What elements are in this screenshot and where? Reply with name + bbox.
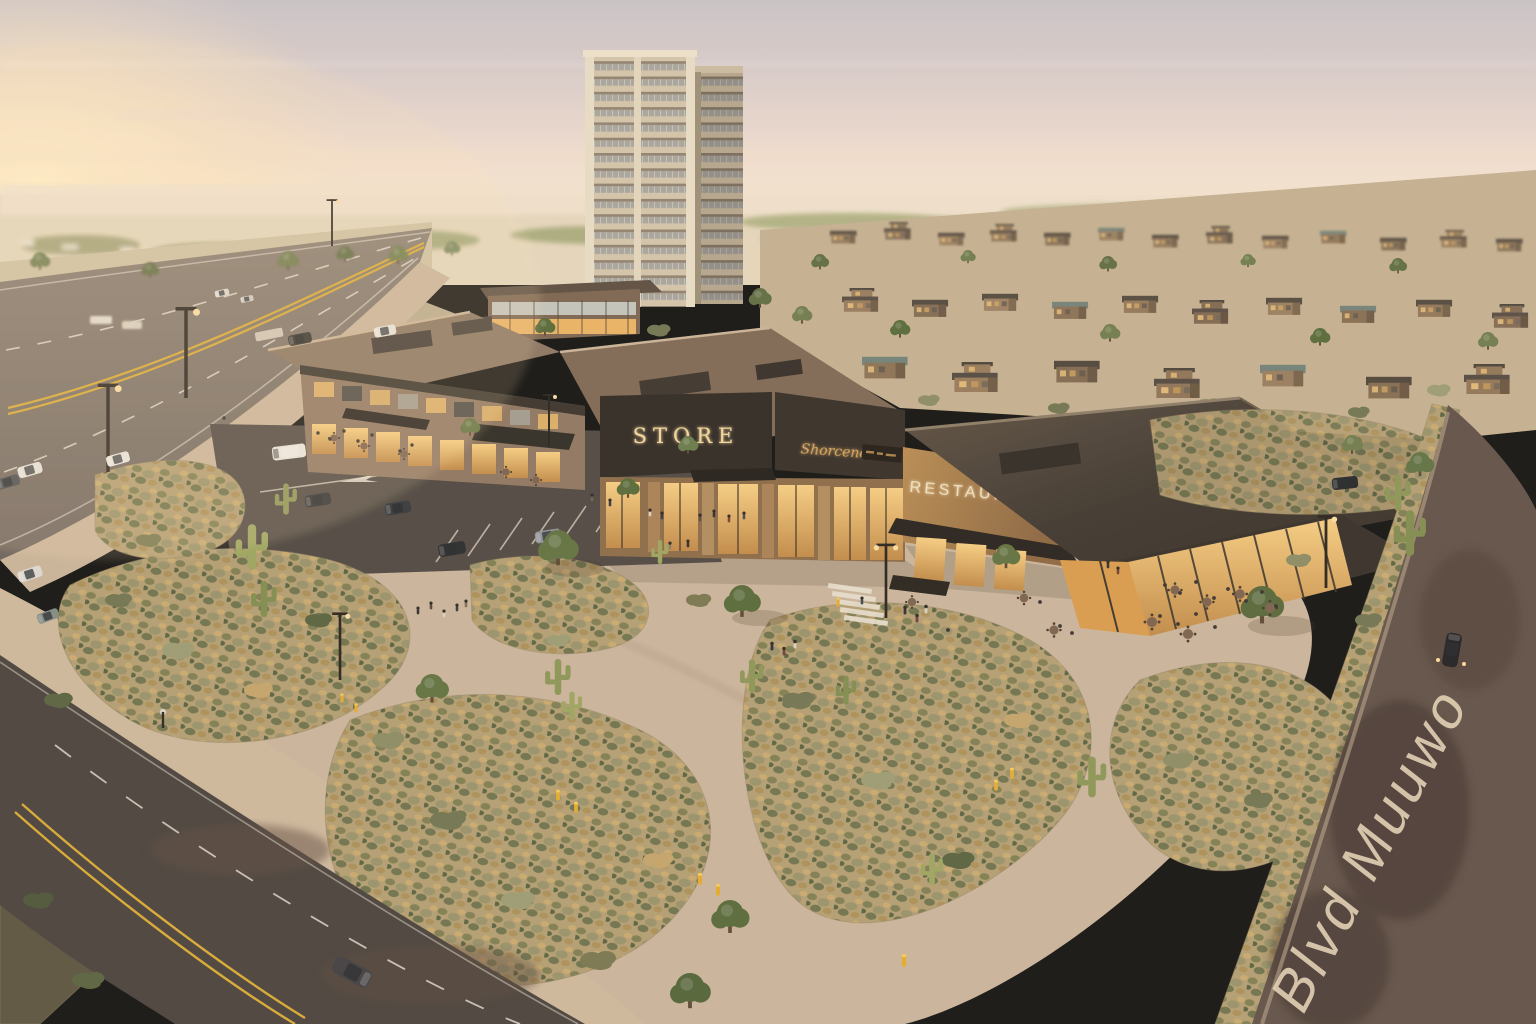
atmosphere: [0, 0, 1536, 1024]
aerial-render: STORE Shorcenee RESTAURANT: [0, 0, 1536, 1024]
